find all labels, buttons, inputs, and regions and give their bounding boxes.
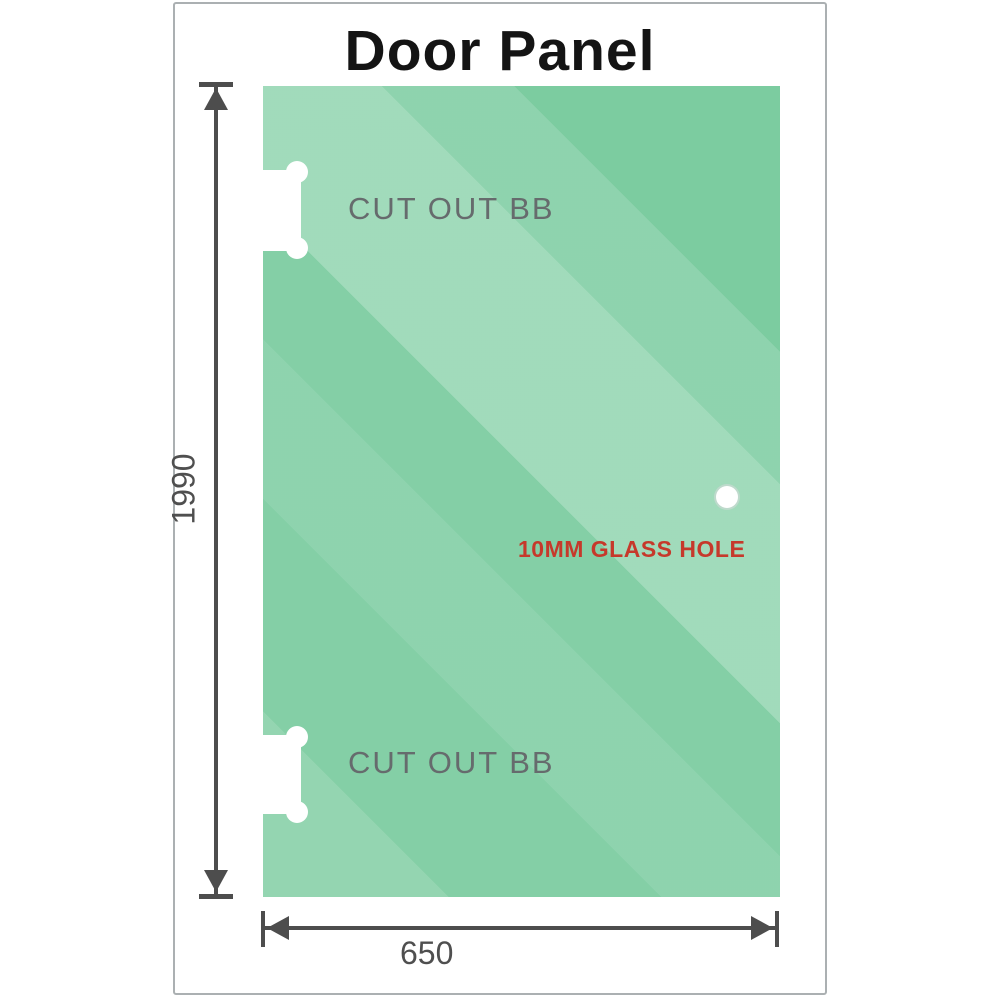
glass-hole-circle xyxy=(714,484,740,510)
arrow-down-icon xyxy=(204,870,228,892)
hinge-cutout-top-hole-lower xyxy=(286,237,308,259)
hinge-cutout-bottom-hole-lower xyxy=(286,801,308,823)
glass-hole-label: 10MM GLASS HOLE xyxy=(518,536,745,563)
hinge-cutout-top-hole-upper xyxy=(286,161,308,183)
page-title: Door Panel xyxy=(173,18,827,84)
height-dimension-line xyxy=(214,84,218,898)
arrow-up-icon xyxy=(204,88,228,110)
cutout-label-bottom: CUT OUT BB xyxy=(348,745,555,781)
width-dimension-tick-right xyxy=(775,911,779,947)
hinge-cutout-bottom-hole-upper xyxy=(286,726,308,748)
width-dimension-tick-left xyxy=(261,911,265,947)
door-glass-panel: CUT OUT BB CUT OUT BB 10MM GLASS HOLE xyxy=(263,86,780,897)
arrow-right-icon xyxy=(751,916,773,940)
height-dimension-cap-bottom xyxy=(199,894,233,899)
arrow-left-icon xyxy=(267,916,289,940)
diagram-canvas: Door Panel CUT OUT BB CUT OUT BB 10MM GL… xyxy=(0,0,1000,1000)
width-dimension-line xyxy=(263,926,778,930)
cutout-label-top: CUT OUT BB xyxy=(348,191,555,227)
height-dimension-cap-top xyxy=(199,82,233,87)
height-dimension-value: 1990 xyxy=(166,453,203,524)
width-dimension-value: 650 xyxy=(400,935,453,972)
